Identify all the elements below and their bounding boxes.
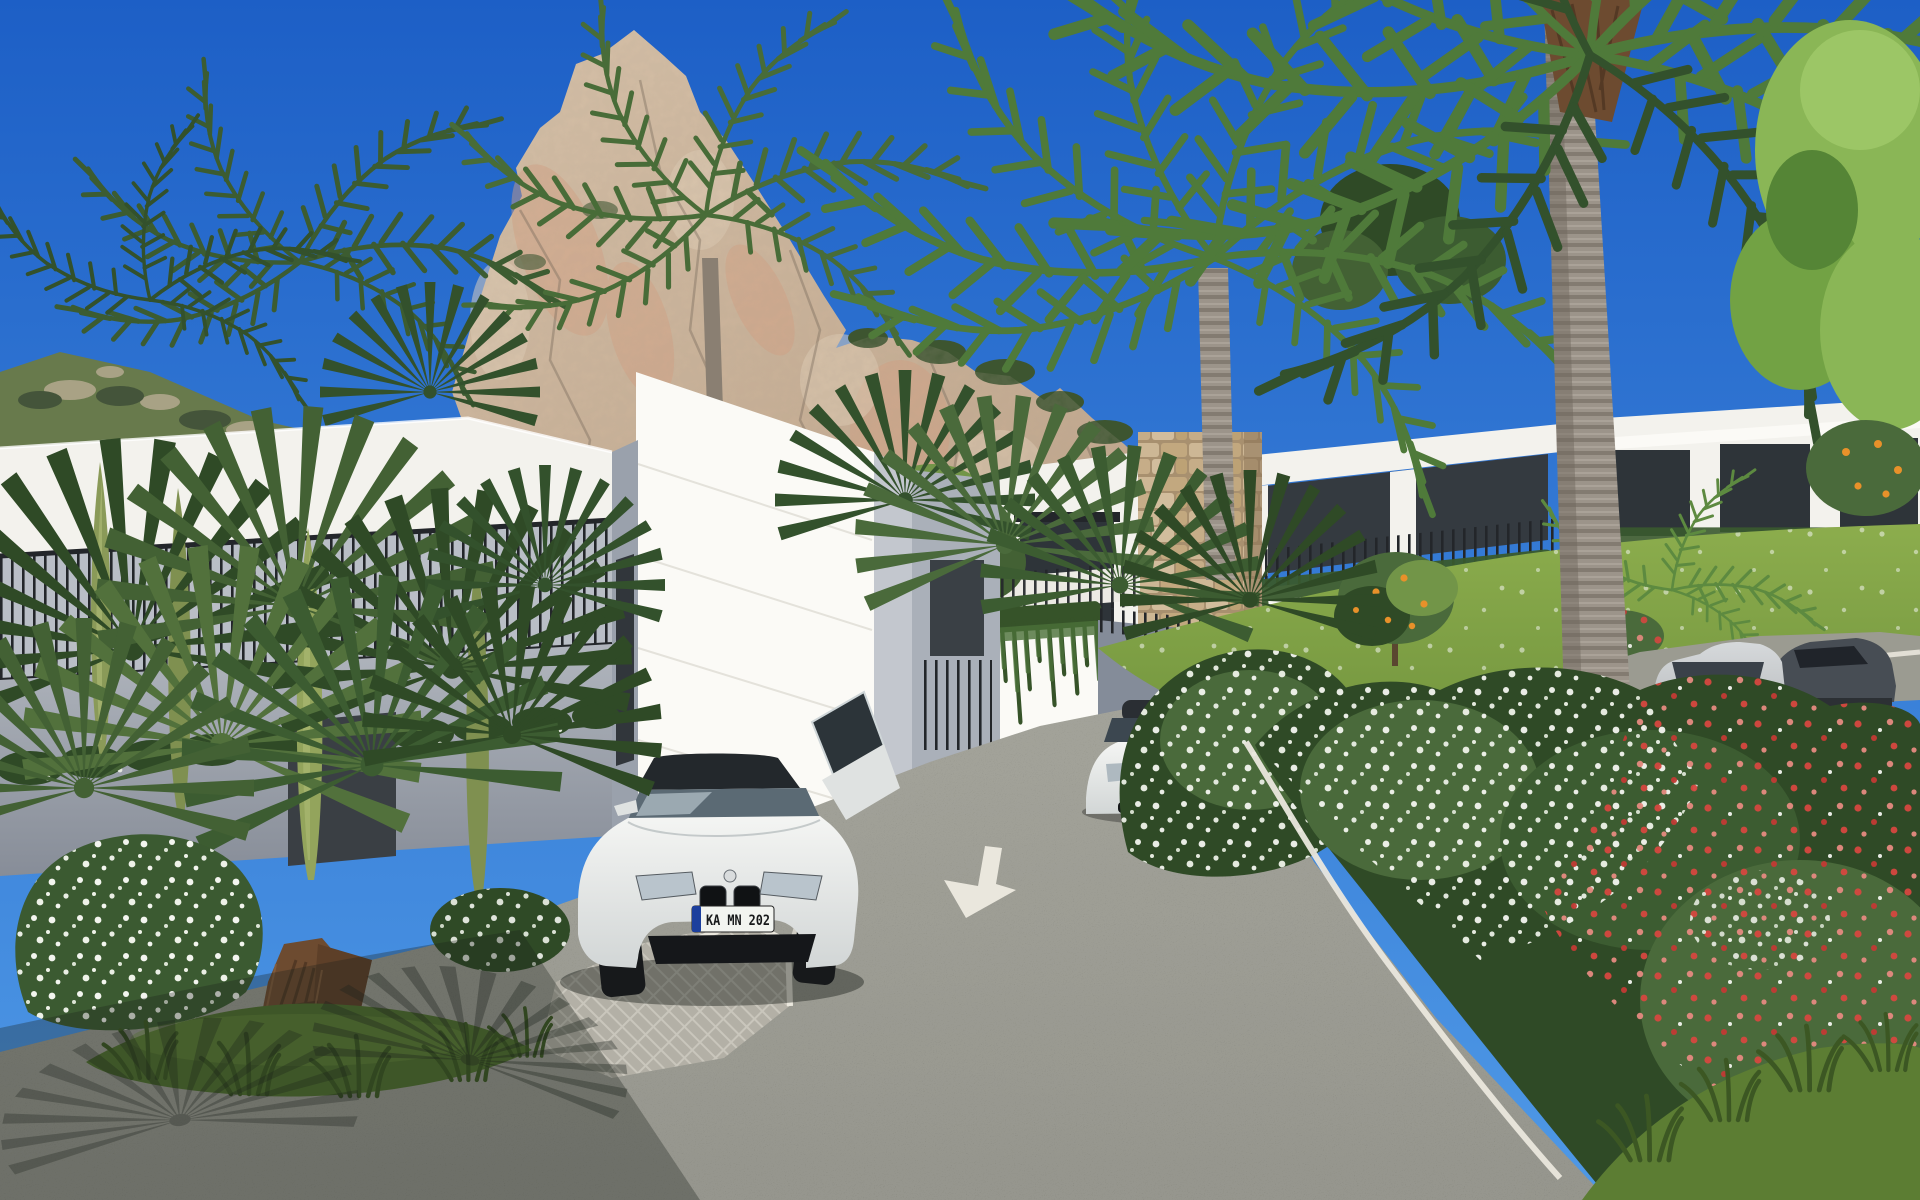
render-canvas: KA MN 202 (0, 0, 1920, 1200)
plate-text: KA MN 202 (706, 913, 770, 929)
scene-render: KA MN 202 (0, 0, 1920, 1200)
license-plate: KA MN 202 (692, 906, 774, 932)
